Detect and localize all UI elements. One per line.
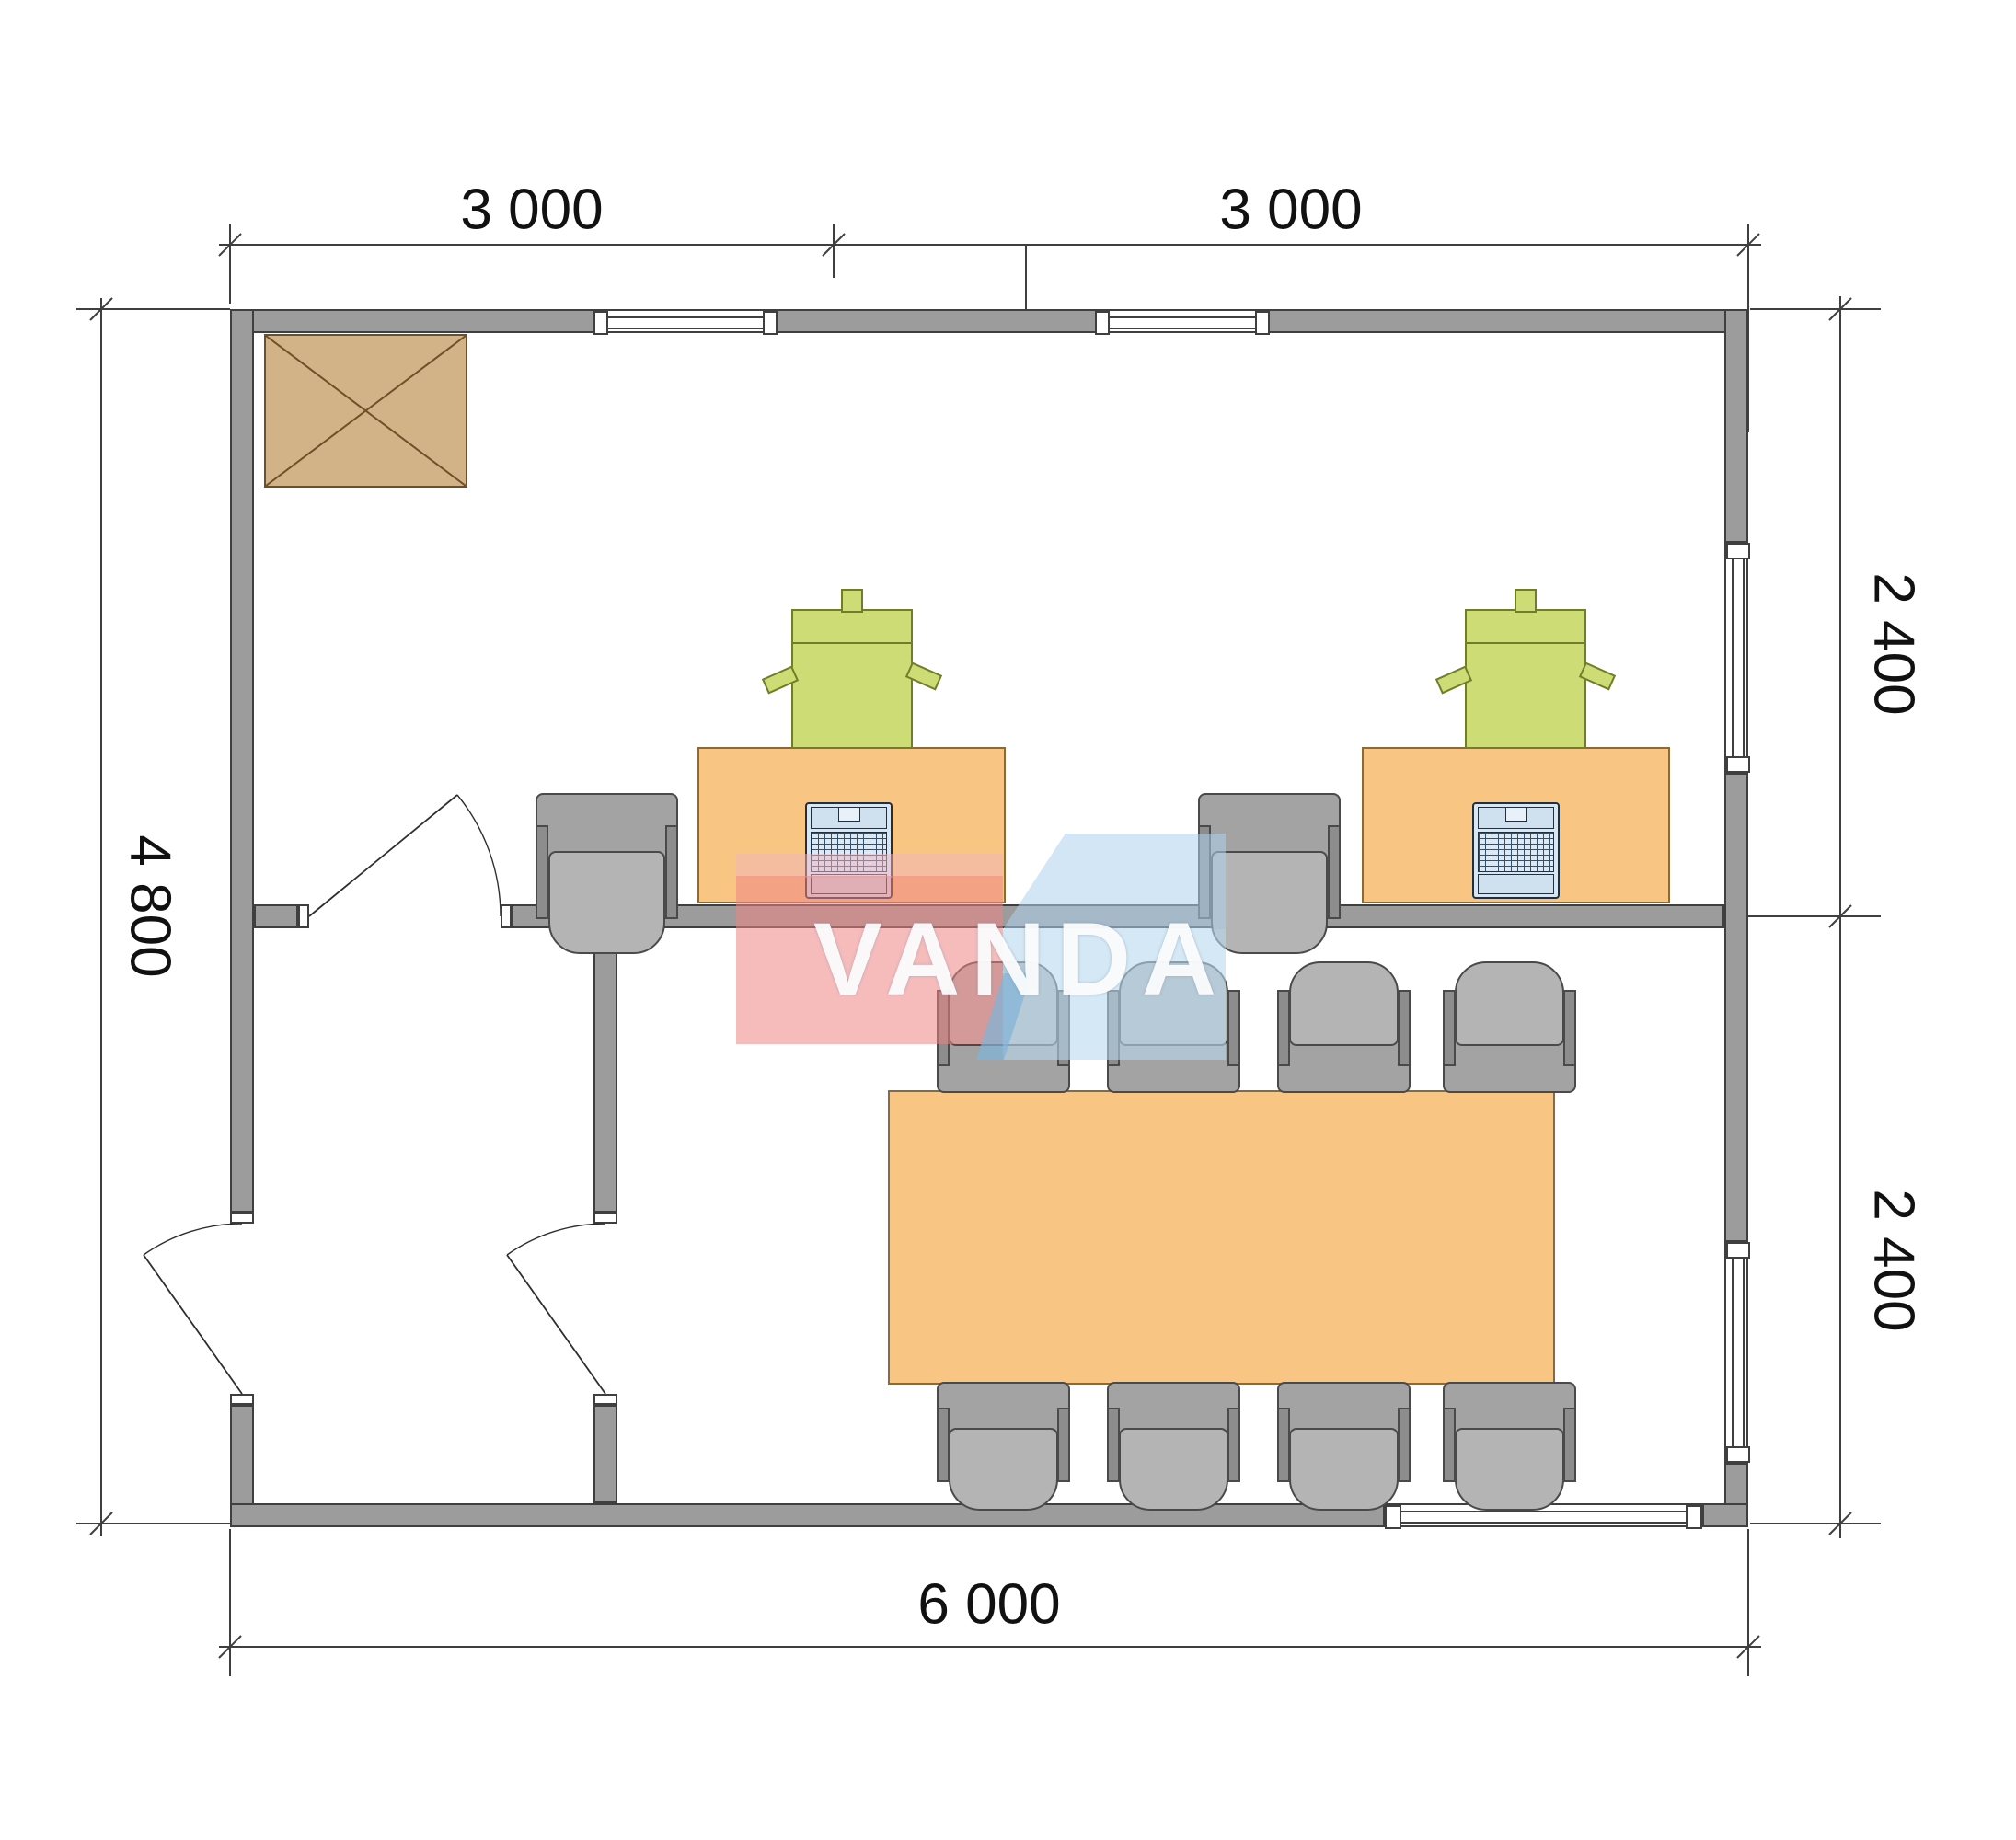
- laptop-icon: [1472, 802, 1560, 899]
- door-jamb: [230, 1213, 254, 1224]
- wall-right: [1724, 309, 1748, 543]
- floor-plan: VANDA: [0, 0, 2016, 1840]
- office-chair-1: [536, 793, 678, 954]
- meeting-chair: [937, 961, 1070, 1093]
- meeting-chair: [1277, 1382, 1411, 1511]
- printer-icon: [791, 609, 913, 749]
- wall-right: [1724, 773, 1748, 1242]
- stove-crossed-box: [264, 334, 467, 488]
- meeting-chair: [1107, 961, 1240, 1093]
- wall-interior-vertical-stub: [593, 1405, 617, 1503]
- window-glazing: [1398, 1511, 1689, 1524]
- meeting-chair: [1443, 1382, 1576, 1511]
- dim-label-bottom: 6 000: [917, 1572, 1060, 1638]
- door-jamb: [298, 904, 309, 928]
- printer-icon: [1465, 609, 1586, 749]
- window-glazing: [1106, 316, 1259, 329]
- door-swing-hall: [507, 1224, 605, 1394]
- dim-label-right-1: 2 400: [1861, 572, 1927, 715]
- dim-right: [1748, 296, 1881, 1538]
- window-right-1: [1724, 543, 1748, 773]
- wall-top: [230, 309, 1748, 333]
- window-right-2: [1724, 1242, 1748, 1463]
- window-top-1: [593, 309, 778, 333]
- window-glazing: [1732, 1255, 1745, 1450]
- dim-label-right-2: 2 400: [1861, 1189, 1927, 1331]
- meeting-chair: [1443, 961, 1576, 1093]
- laptop-icon: [805, 802, 893, 899]
- window-top-2: [1095, 309, 1270, 333]
- meeting-chair: [1277, 961, 1411, 1093]
- door-jamb: [593, 1394, 617, 1405]
- office-chair-2: [1198, 793, 1341, 954]
- door-swing-office: [309, 795, 501, 916]
- door-jamb: [501, 904, 512, 928]
- meeting-table: [888, 1090, 1555, 1385]
- door-jamb: [593, 1213, 617, 1224]
- wall-interior-horizontal: [254, 904, 298, 928]
- wall-bottom: [1702, 1503, 1748, 1527]
- window-glazing: [1732, 556, 1745, 760]
- wall-interior-horizontal: [512, 904, 1724, 928]
- dim-label-left: 4 800: [118, 834, 183, 977]
- dim-label-top-2: 3 000: [1219, 178, 1362, 243]
- meeting-chair: [937, 1382, 1070, 1511]
- dim-label-top-1: 3 000: [460, 178, 603, 243]
- window-glazing: [605, 316, 766, 329]
- meeting-chair: [1107, 1382, 1240, 1511]
- wall-left: [230, 309, 254, 1213]
- wall-interior-vertical: [593, 928, 617, 1213]
- door-jamb: [230, 1394, 254, 1405]
- door-swing-entrance: [144, 1224, 242, 1394]
